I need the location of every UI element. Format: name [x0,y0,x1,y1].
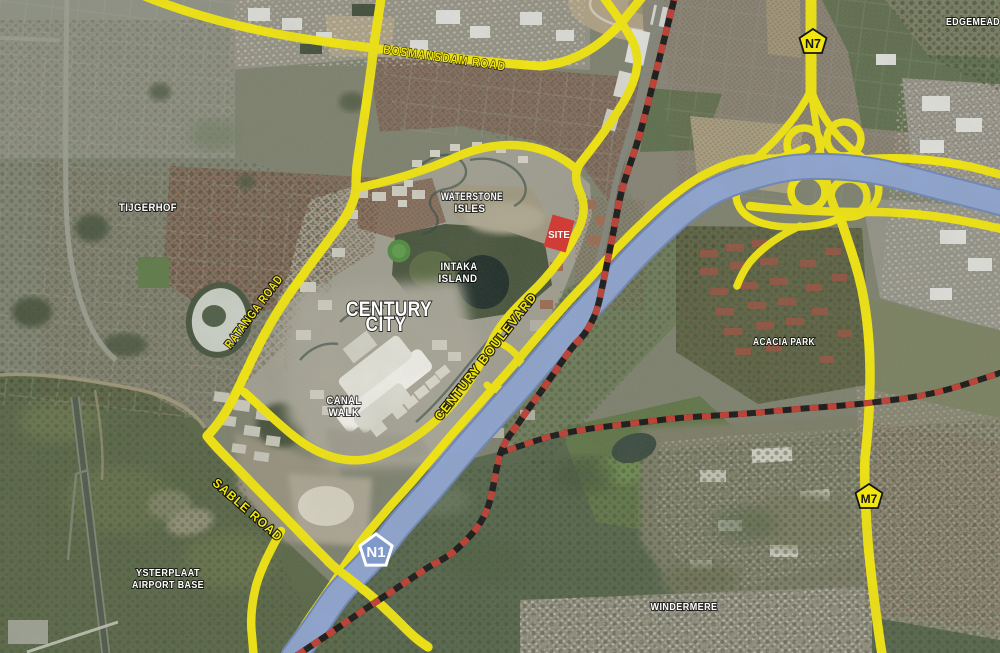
svg-text:WINDERMERE: WINDERMERE [651,601,718,613]
svg-text:WATERSTONE: WATERSTONE [441,191,503,203]
svg-text:ISLAND: ISLAND [439,273,478,285]
svg-text:CANAL: CANAL [327,395,362,407]
svg-text:ISLES: ISLES [455,203,486,215]
svg-text:N1: N1 [366,544,385,561]
svg-text:SITE: SITE [548,230,570,241]
svg-text:YSTERPLAAT: YSTERPLAAT [136,567,200,579]
svg-text:EDGEMEAD: EDGEMEAD [946,16,1000,28]
svg-text:M7: M7 [861,492,878,506]
svg-text:N7: N7 [805,37,821,51]
svg-text:ACACIA PARK: ACACIA PARK [753,336,815,348]
svg-text:INTAKA: INTAKA [441,261,478,273]
svg-text:WALK: WALK [329,407,360,419]
svg-text:CITY: CITY [366,312,407,336]
svg-text:AIRPORT BASE: AIRPORT BASE [132,579,204,591]
svg-text:TIJGERHOF: TIJGERHOF [119,202,177,214]
